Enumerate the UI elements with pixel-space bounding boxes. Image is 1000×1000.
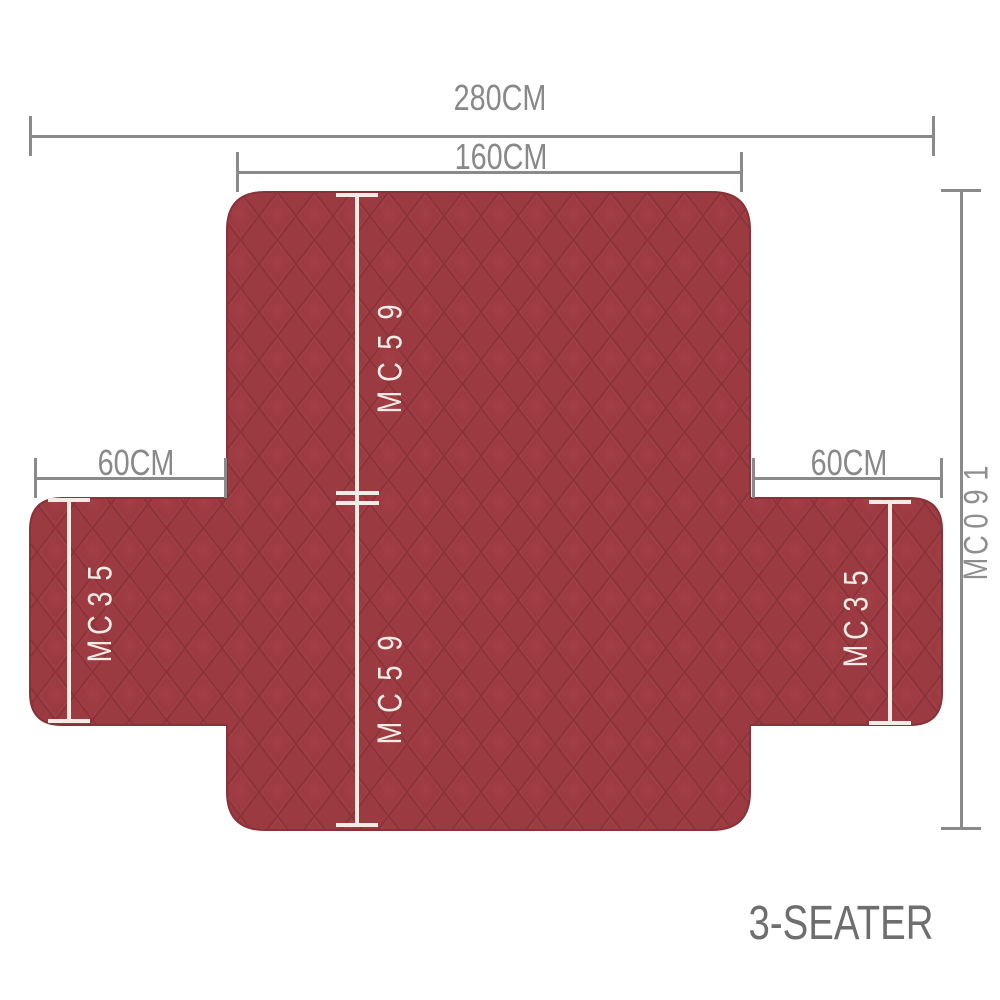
dim-armrest-right-height-label: 53CM bbox=[838, 565, 874, 669]
vertical-label-char: 0 bbox=[964, 513, 988, 528]
vertical-label-char: C bbox=[843, 620, 869, 640]
fabric-outline bbox=[30, 192, 942, 830]
vertical-label-char: 5 bbox=[87, 565, 113, 580]
vertical-label-char: 3 bbox=[843, 596, 869, 611]
dim-backrest-height-label: 95CM bbox=[372, 297, 408, 417]
dim-seat-depth-label: 95CM bbox=[372, 628, 408, 748]
vertical-label-char: M bbox=[843, 645, 869, 668]
dim-seat-width-line bbox=[236, 171, 743, 174]
vertical-label-char: M bbox=[375, 391, 405, 414]
vertical-label-char: 5 bbox=[375, 334, 405, 349]
vertical-label-char: 5 bbox=[843, 570, 869, 585]
vertical-label-char: 1 bbox=[964, 465, 988, 480]
sofa-cover-dimension-diagram: 280CM 160CM 60CM 60CM 190CM 95CM 95CM 53… bbox=[0, 0, 1000, 1000]
vertical-label-char: 3 bbox=[87, 591, 113, 606]
dim-total-width-label: 280CM bbox=[442, 77, 558, 119]
vertical-label-char: 9 bbox=[375, 304, 405, 319]
vertical-label-char: 5 bbox=[375, 665, 405, 680]
vertical-label-char: 9 bbox=[375, 635, 405, 650]
dim-center-line bbox=[355, 193, 359, 827]
dim-armrest-left-height-label: 53CM bbox=[82, 560, 118, 664]
vertical-label-char: M bbox=[964, 558, 988, 581]
dim-center-junction-tick-lower bbox=[336, 501, 379, 505]
dim-armrest-left-height-line bbox=[67, 498, 71, 723]
dim-center-junction-tick-upper bbox=[336, 491, 379, 495]
dim-armrest-right-height-line bbox=[888, 500, 892, 725]
vertical-label-char: C bbox=[87, 615, 113, 635]
vertical-label-char: M bbox=[375, 722, 405, 745]
vertical-label-char: C bbox=[375, 693, 405, 713]
vertical-label-char: 9 bbox=[964, 489, 988, 504]
vertical-label-char: M bbox=[87, 640, 113, 663]
dim-armrest-right-width-line bbox=[752, 477, 943, 480]
product-type-label: 3-SEATER bbox=[725, 896, 956, 951]
dim-total-length-label: 190CM bbox=[958, 461, 994, 581]
dim-armrest-left-width-line bbox=[34, 477, 227, 480]
vertical-label-char: C bbox=[375, 362, 405, 382]
vertical-label-char: C bbox=[964, 535, 988, 555]
